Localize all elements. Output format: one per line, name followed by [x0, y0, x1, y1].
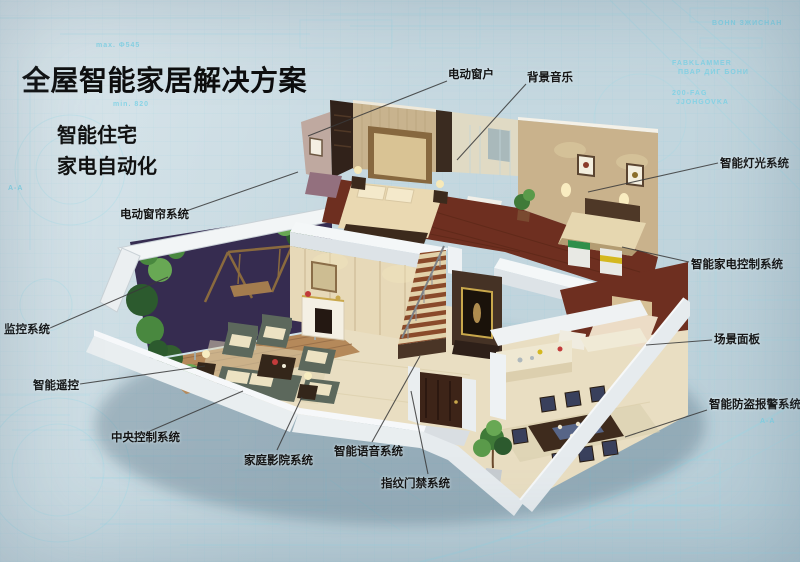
callout-smart-lighting: 智能灯光系统 — [720, 155, 789, 171]
leader-line — [646, 340, 712, 345]
leader-line — [457, 84, 526, 160]
callout-burglar-alarm: 智能防盗报警系统 — [709, 396, 800, 412]
leader-line — [622, 247, 689, 262]
callout-monitoring-system: 监控系统 — [4, 321, 50, 337]
poster: min. 820 max. Φ545 200-FAG A-A FABKLAMME… — [0, 0, 800, 562]
leader-line — [50, 277, 168, 328]
callout-scene-panel: 场景面板 — [714, 331, 760, 347]
callout-background-music: 背景音乐 — [527, 69, 573, 85]
callout-smart-voice: 智能语音系统 — [334, 443, 403, 459]
leader-line — [411, 391, 428, 474]
leader-line — [80, 366, 205, 384]
subtitle-line-2: 家电自动化 — [57, 150, 157, 179]
callout-fingerprint-access: 指纹门禁系统 — [381, 475, 450, 491]
leader-line — [186, 172, 298, 211]
callout-smart-remote: 智能遥控 — [33, 377, 79, 393]
page-title: 全屋智能家居解决方案 — [22, 59, 307, 99]
callout-home-theater: 家庭影院系统 — [244, 452, 313, 468]
leader-line — [150, 391, 243, 431]
callout-central-control: 中央控制系统 — [111, 429, 180, 445]
callout-electric-curtain: 电动窗帘系统 — [120, 206, 189, 222]
leader-line — [625, 410, 707, 437]
callout-electric-window: 电动窗户 — [448, 66, 494, 82]
leader-line — [308, 81, 447, 136]
leader-line — [588, 163, 718, 192]
subtitle-line-1: 智能住宅 — [57, 119, 137, 148]
leader-line — [277, 397, 302, 450]
callout-smart-appliance-control: 智能家电控制系统 — [691, 256, 783, 272]
